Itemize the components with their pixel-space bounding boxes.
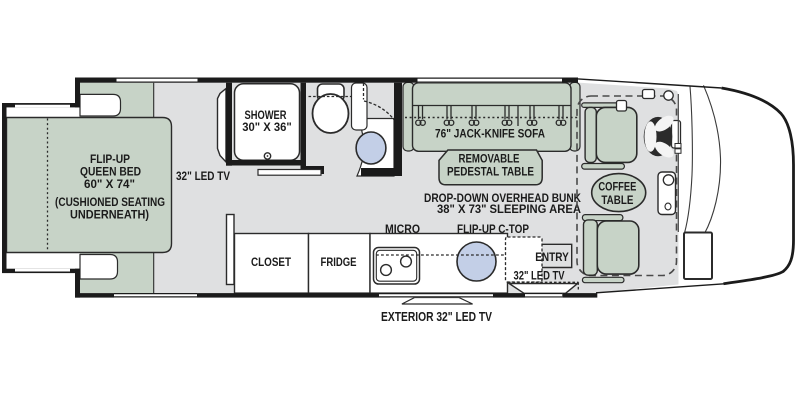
svg-text:FLIP-UP C-TOP: FLIP-UP C-TOP — [457, 222, 529, 236]
svg-text:ENTRY: ENTRY — [535, 250, 569, 264]
svg-text:REMOVABLE: REMOVABLE — [459, 152, 520, 166]
svg-text:UNDERNEATH): UNDERNEATH) — [70, 208, 149, 222]
svg-text:COFFEE: COFFEE — [598, 180, 636, 194]
svg-text:TABLE: TABLE — [601, 193, 633, 207]
svg-text:76" JACK-KNIFE SOFA: 76" JACK-KNIFE SOFA — [435, 127, 545, 141]
svg-text:CLOSET: CLOSET — [251, 255, 291, 269]
svg-text:32" LED TV: 32" LED TV — [176, 169, 231, 183]
svg-text:FRIDGE: FRIDGE — [321, 255, 357, 269]
svg-text:60" X 74": 60" X 74" — [84, 177, 135, 191]
svg-text:EXTERIOR 32" LED TV: EXTERIOR 32" LED TV — [381, 309, 492, 324]
svg-text:30" X 36": 30" X 36" — [242, 120, 292, 134]
svg-text:MICRO: MICRO — [385, 222, 420, 236]
svg-text:38" X 73" SLEEPING AREA: 38" X 73" SLEEPING AREA — [437, 202, 581, 216]
svg-text:PEDESTAL TABLE: PEDESTAL TABLE — [447, 165, 534, 179]
svg-text:32" LED TV: 32" LED TV — [514, 268, 566, 282]
